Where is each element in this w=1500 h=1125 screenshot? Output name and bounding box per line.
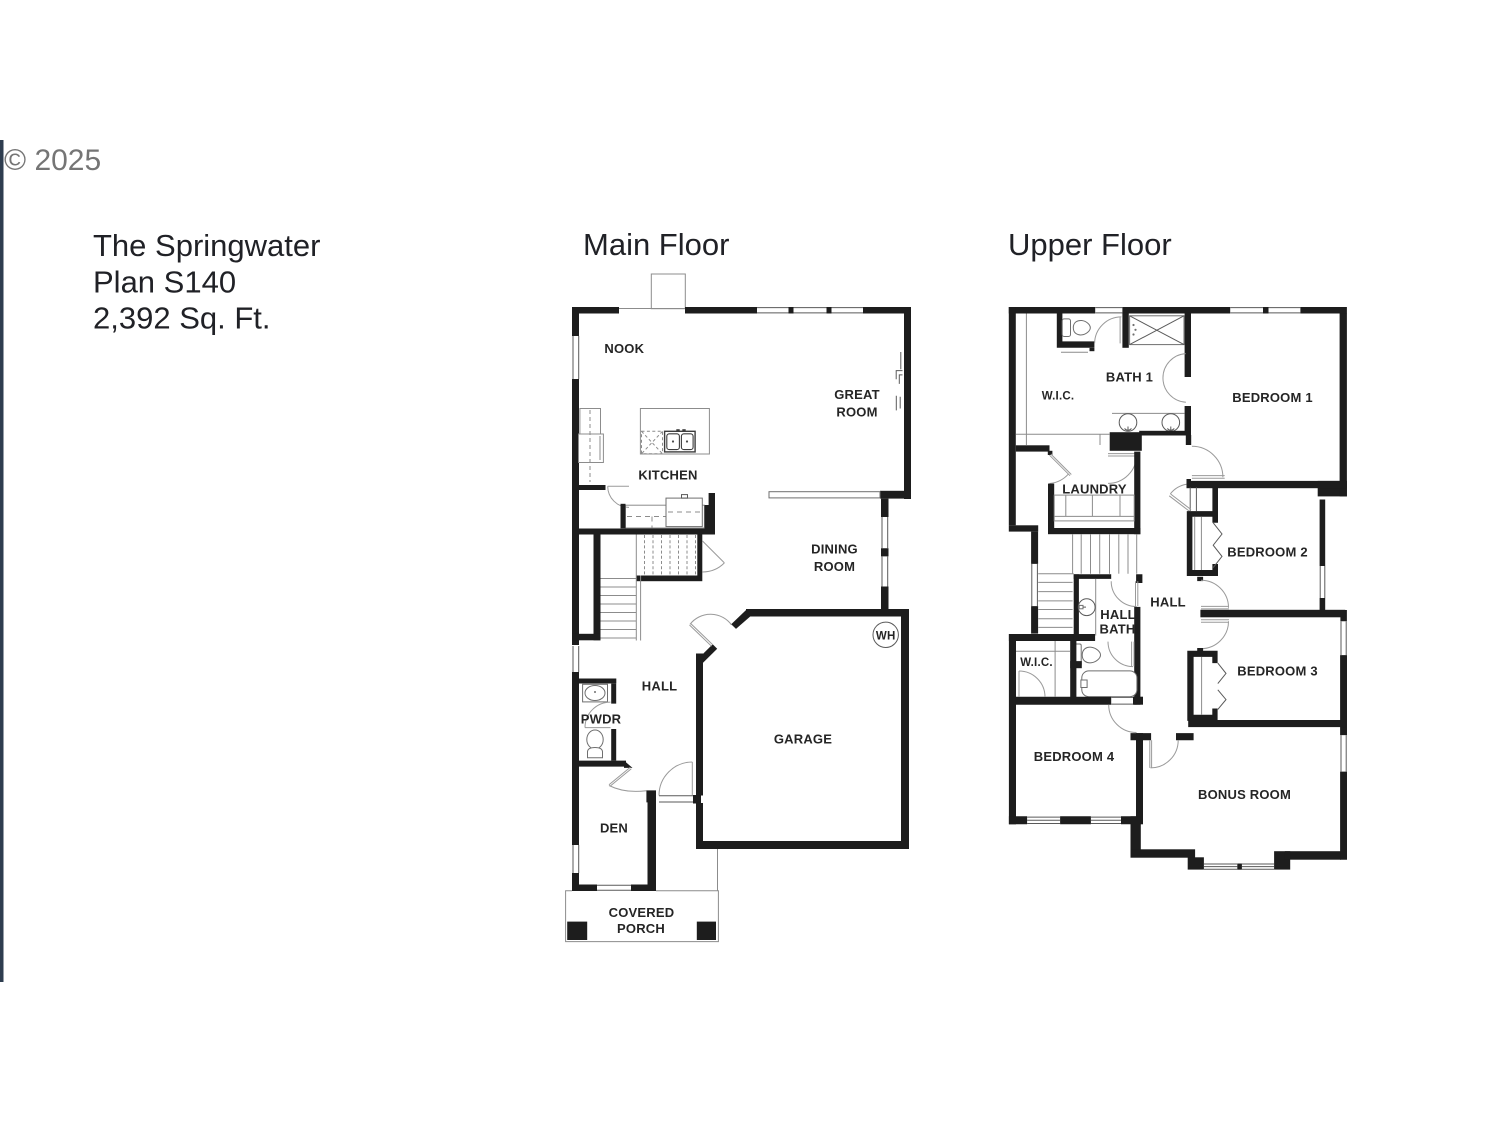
- svg-text:Upper Floor: Upper Floor: [1008, 227, 1172, 262]
- svg-text:W.I.C.: W.I.C.: [1042, 391, 1075, 403]
- svg-text:BEDROOM 3: BEDROOM 3: [1237, 664, 1318, 679]
- svg-text:GREAT: GREAT: [834, 387, 880, 402]
- svg-text:COVERED: COVERED: [609, 905, 675, 920]
- svg-text:BATH 1: BATH 1: [1106, 370, 1153, 385]
- svg-text:PWDR: PWDR: [581, 712, 622, 727]
- svg-text:BATH: BATH: [1100, 621, 1136, 636]
- svg-text:GARAGE: GARAGE: [774, 732, 832, 747]
- svg-text:Plan S140: Plan S140: [93, 265, 236, 300]
- svg-text:DEN: DEN: [600, 821, 628, 836]
- svg-text:LAUNDRY: LAUNDRY: [1062, 482, 1127, 497]
- svg-text:HALL: HALL: [1150, 594, 1185, 609]
- svg-text:2,392 Sq. Ft.: 2,392 Sq. Ft.: [93, 301, 271, 336]
- svg-text:HALL: HALL: [642, 679, 677, 694]
- svg-text:BONUS ROOM: BONUS ROOM: [1198, 787, 1291, 802]
- svg-text:ROOM: ROOM: [814, 559, 855, 574]
- svg-text:WH: WH: [876, 630, 896, 642]
- svg-text:PORCH: PORCH: [617, 921, 665, 936]
- svg-text:The Springwater: The Springwater: [93, 228, 320, 263]
- svg-text:© 2025: © 2025: [4, 144, 101, 177]
- svg-text:KITCHEN: KITCHEN: [638, 468, 697, 483]
- svg-text:BEDROOM 4: BEDROOM 4: [1034, 749, 1115, 764]
- svg-text:BEDROOM 1: BEDROOM 1: [1232, 390, 1313, 405]
- svg-text:W.I.C.: W.I.C.: [1020, 657, 1053, 669]
- svg-text:DINING: DINING: [811, 542, 858, 557]
- svg-text:HALL: HALL: [1100, 607, 1135, 622]
- svg-text:Main Floor: Main Floor: [583, 227, 729, 262]
- svg-text:BEDROOM 2: BEDROOM 2: [1227, 545, 1308, 560]
- svg-text:NOOK: NOOK: [604, 341, 644, 356]
- svg-text:ROOM: ROOM: [836, 405, 877, 420]
